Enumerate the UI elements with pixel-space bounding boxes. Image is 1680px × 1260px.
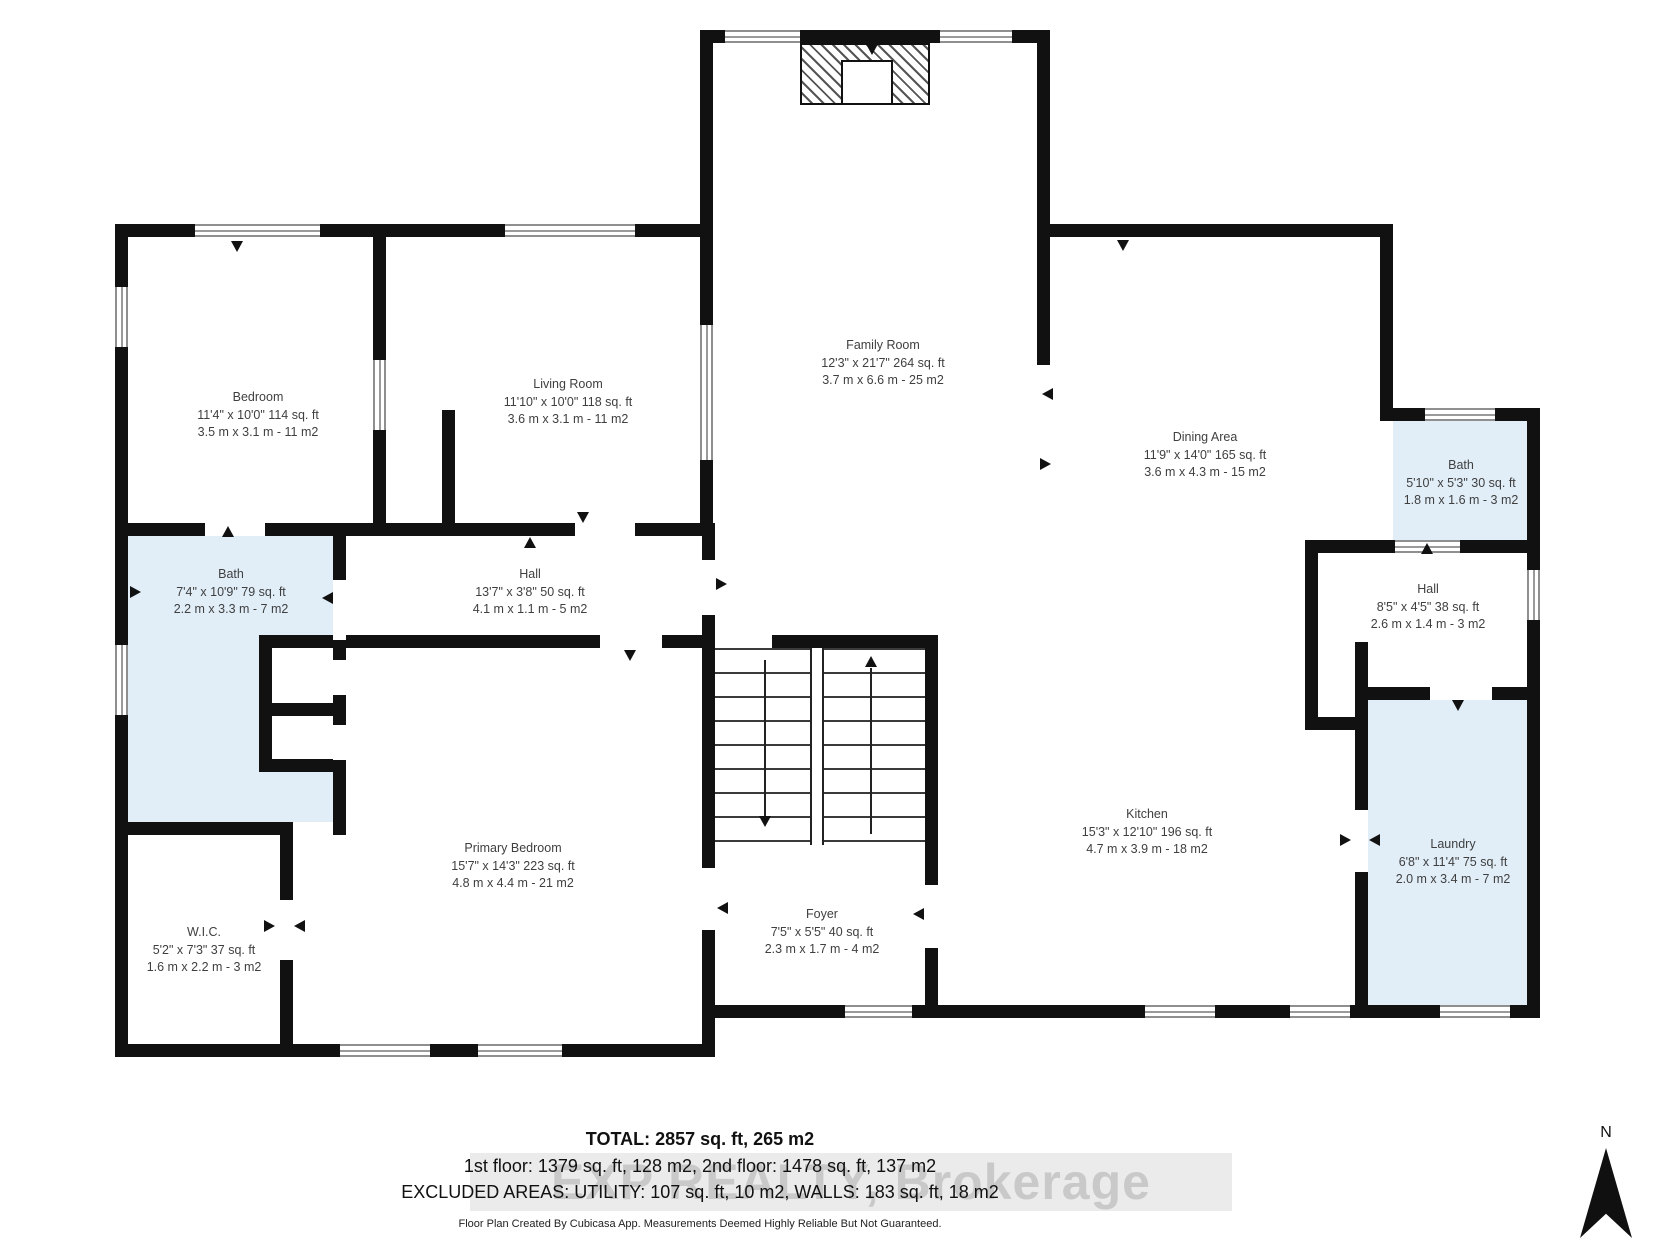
room-dims-metric: 2.0 m x 3.4 m - 7 m2 — [1396, 871, 1511, 888]
wall — [772, 635, 925, 648]
window — [195, 224, 320, 237]
room-dims-imperial: 11'9" x 14'0" 165 sq. ft — [1144, 447, 1267, 464]
door-opening — [1430, 687, 1492, 700]
room-name: Kitchen — [1082, 807, 1212, 821]
entry-door — [845, 1005, 912, 1018]
door-marker — [624, 650, 636, 661]
room-dims-imperial: 8'5" x 4'5" 38 sq. ft — [1371, 599, 1486, 616]
door-opening — [333, 580, 346, 640]
door-marker — [1340, 834, 1351, 846]
wall — [259, 759, 346, 772]
room-dims-metric: 4.8 m x 4.4 m - 21 m2 — [451, 875, 574, 892]
room-name: Primary Bedroom — [451, 841, 574, 855]
door-marker — [717, 902, 728, 914]
door-opening — [280, 900, 293, 960]
wall — [700, 30, 713, 325]
room-label-hall-left: Hall 13'7" x 3'8" 50 sq. ft 4.1 m x 1.1 … — [473, 567, 588, 617]
stairs-up-line — [870, 668, 872, 834]
room-dims-metric: 2.3 m x 1.7 m - 4 m2 — [765, 941, 880, 958]
room-name: Living Room — [504, 377, 633, 391]
fireplace-firebox — [841, 60, 893, 105]
north-label: N — [1586, 1124, 1626, 1142]
room-label-wic: W.I.C. 5'2" x 7'3" 37 sq. ft 1.6 m x 2.2… — [147, 925, 262, 975]
room-name: Family Room — [821, 338, 944, 352]
wall — [1305, 540, 1318, 730]
door-marker — [294, 920, 305, 932]
stairs-divider — [810, 648, 824, 845]
room-dims-metric: 1.6 m x 2.2 m - 3 m2 — [147, 959, 262, 976]
door-opening — [205, 523, 265, 536]
room-dims-metric: 4.1 m x 1.1 m - 5 m2 — [473, 601, 588, 618]
window — [1290, 1005, 1350, 1018]
wall — [702, 1005, 1540, 1018]
door-marker — [1421, 543, 1433, 554]
door-marker — [716, 578, 727, 590]
window — [1527, 570, 1540, 620]
wall — [1380, 224, 1393, 421]
room-name: Hall — [473, 567, 588, 581]
window — [725, 30, 800, 43]
room-dims-imperial: 12'3" x 21'7" 264 sq. ft — [821, 355, 944, 372]
room-dims-imperial: 15'7" x 14'3" 223 sq. ft — [451, 858, 574, 875]
door-opening — [702, 868, 715, 930]
room-dims-metric: 3.7 m x 6.6 m - 25 m2 — [821, 372, 944, 389]
room-label-living-room: Living Room 11'10" x 10'0" 118 sq. ft 3.… — [504, 377, 633, 427]
room-dims-imperial: 11'4" x 10'0" 114 sq. ft — [197, 407, 319, 424]
stairs-down-line — [764, 660, 766, 818]
room-dims-imperial: 13'7" x 3'8" 50 sq. ft — [473, 584, 588, 601]
door-marker — [130, 586, 141, 598]
door-marker — [1117, 240, 1129, 251]
window — [505, 224, 635, 237]
summary-floors: 1st floor: 1379 sq. ft, 128 m2, 2nd floo… — [0, 1156, 1400, 1177]
room-name: Bath — [174, 567, 289, 581]
stairs-up-arrow-icon — [865, 656, 877, 667]
room-name: Hall — [1371, 582, 1486, 596]
wall — [1527, 408, 1540, 1018]
door-opening — [1355, 810, 1368, 872]
room-label-family-room: Family Room 12'3" x 21'7" 264 sq. ft 3.7… — [821, 338, 944, 388]
north-arrow-icon — [1580, 1148, 1632, 1238]
door-marker — [322, 592, 333, 604]
room-label-primary-bedroom: Primary Bedroom 15'7" x 14'3" 223 sq. ft… — [451, 841, 574, 891]
window — [940, 30, 1012, 43]
door-marker — [913, 908, 924, 920]
wall — [1037, 30, 1050, 365]
room-dims-imperial: 7'5" x 5'5" 40 sq. ft — [765, 924, 880, 941]
room-dims-imperial: 7'4" x 10'9" 79 sq. ft — [174, 584, 289, 601]
wall — [925, 635, 938, 1005]
room-dims-imperial: 6'8" x 11'4" 75 sq. ft — [1396, 854, 1511, 871]
room-dims-imperial: 15'3" x 12'10" 196 sq. ft — [1082, 824, 1212, 841]
floor-plan: Bedroom 11'4" x 10'0" 114 sq. ft 3.5 m x… — [0, 0, 1680, 1260]
room-name: Foyer — [765, 907, 880, 921]
stairs-down-arrow-icon — [759, 816, 771, 827]
room-label-bath-upper: Bath 5'10" x 5'3" 30 sq. ft 1.8 m x 1.6 … — [1404, 458, 1519, 508]
room-label-hall-right: Hall 8'5" x 4'5" 38 sq. ft 2.6 m x 1.4 m… — [1371, 582, 1486, 632]
room-name: Bedroom — [197, 390, 319, 404]
door-opening — [333, 660, 346, 695]
window — [478, 1044, 562, 1057]
window — [115, 645, 128, 715]
room-label-kitchen: Kitchen 15'3" x 12'10" 196 sq. ft 4.7 m … — [1082, 807, 1212, 857]
room-dims-metric: 3.5 m x 3.1 m - 11 m2 — [197, 424, 319, 441]
room-name: Laundry — [1396, 837, 1511, 851]
door-opening — [333, 725, 346, 760]
window — [1145, 1005, 1215, 1018]
wall — [1037, 224, 1393, 237]
summary-total: TOTAL: 2857 sq. ft, 265 m2 — [0, 1129, 1400, 1150]
door-marker — [264, 920, 275, 932]
window — [373, 360, 386, 430]
wall — [259, 703, 346, 716]
room-name: W.I.C. — [147, 925, 262, 939]
room-label-bedroom: Bedroom 11'4" x 10'0" 114 sq. ft 3.5 m x… — [197, 390, 319, 440]
door-marker — [231, 241, 243, 252]
room-name: Dining Area — [1144, 430, 1267, 444]
summary-disclaimer: Floor Plan Created By Cubicasa App. Meas… — [0, 1218, 1400, 1230]
room-label-bath-left: Bath 7'4" x 10'9" 79 sq. ft 2.2 m x 3.3 … — [174, 567, 289, 617]
room-dims-metric: 1.8 m x 1.6 m - 3 m2 — [1404, 492, 1519, 509]
wall — [442, 410, 455, 536]
window — [340, 1044, 430, 1057]
window — [115, 287, 128, 347]
summary-excluded: EXCLUDED AREAS: UTILITY: 107 sq. ft, 10 … — [0, 1182, 1400, 1203]
door-marker — [222, 526, 234, 537]
room-label-laundry: Laundry 6'8" x 11'4" 75 sq. ft 2.0 m x 3… — [1396, 837, 1511, 887]
room-label-dining-area: Dining Area 11'9" x 14'0" 165 sq. ft 3.6… — [1144, 430, 1267, 480]
wall — [115, 224, 128, 1057]
door-marker — [1452, 700, 1464, 711]
door-marker — [1307, 590, 1318, 602]
door-marker — [577, 512, 589, 523]
door-marker — [866, 44, 878, 55]
room-dims-metric: 3.6 m x 4.3 m - 15 m2 — [1144, 464, 1267, 481]
wall — [115, 822, 293, 835]
window — [1425, 408, 1495, 421]
room-label-foyer: Foyer 7'5" x 5'5" 40 sq. ft 2.3 m x 1.7 … — [765, 907, 880, 957]
window — [700, 325, 713, 460]
room-dims-metric: 4.7 m x 3.9 m - 18 m2 — [1082, 841, 1212, 858]
room-dims-metric: 3.6 m x 3.1 m - 11 m2 — [504, 411, 633, 428]
door-marker — [1042, 388, 1053, 400]
room-dims-imperial: 5'2" x 7'3" 37 sq. ft — [147, 942, 262, 959]
window — [1440, 1005, 1510, 1018]
door-opening — [575, 523, 635, 536]
door-marker — [1369, 834, 1380, 846]
room-dims-imperial: 11'10" x 10'0" 118 sq. ft — [504, 394, 633, 411]
room-dims-metric: 2.6 m x 1.4 m - 3 m2 — [1371, 616, 1486, 633]
door-opening — [702, 560, 715, 615]
room-dims-metric: 2.2 m x 3.3 m - 7 m2 — [174, 601, 289, 618]
door-marker — [524, 537, 536, 548]
door-opening — [925, 885, 938, 948]
door-opening — [600, 635, 662, 648]
room-dims-imperial: 5'10" x 5'3" 30 sq. ft — [1404, 475, 1519, 492]
room-name: Bath — [1404, 458, 1519, 472]
door-marker — [1040, 458, 1051, 470]
